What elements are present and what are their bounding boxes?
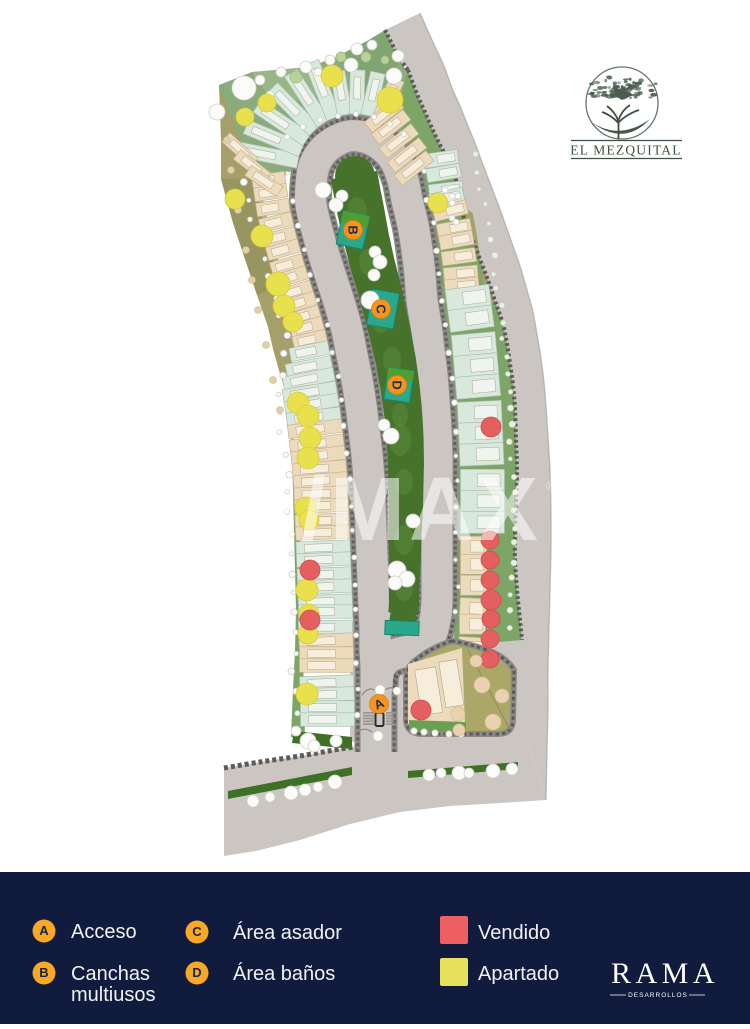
- svg-text:D: D: [390, 380, 405, 389]
- svg-text:Canchas: Canchas: [71, 963, 150, 985]
- svg-text:Área baños: Área baños: [233, 962, 335, 985]
- svg-text:C: C: [192, 924, 202, 939]
- svg-text:Área asador: Área asador: [233, 921, 342, 944]
- svg-text:B: B: [39, 965, 48, 980]
- svg-text:multiusos: multiusos: [71, 984, 155, 1006]
- svg-text:B: B: [346, 225, 361, 234]
- svg-text:EL MEZQUITAL: EL MEZQUITAL: [570, 143, 681, 158]
- svg-text:A: A: [39, 923, 49, 938]
- svg-text:Apartado: Apartado: [478, 963, 559, 985]
- svg-text:Vendido: Vendido: [478, 922, 550, 944]
- svg-text:RAMA: RAMA: [611, 957, 719, 990]
- svg-text:DESARROLLOS: DESARROLLOS: [628, 992, 688, 999]
- svg-text:®: ®: [546, 478, 556, 493]
- svg-text:D: D: [192, 965, 201, 980]
- svg-text:C: C: [374, 304, 389, 314]
- svg-text:RE/MAX: RE/MAX: [168, 460, 542, 560]
- svg-text:Acceso: Acceso: [71, 921, 137, 943]
